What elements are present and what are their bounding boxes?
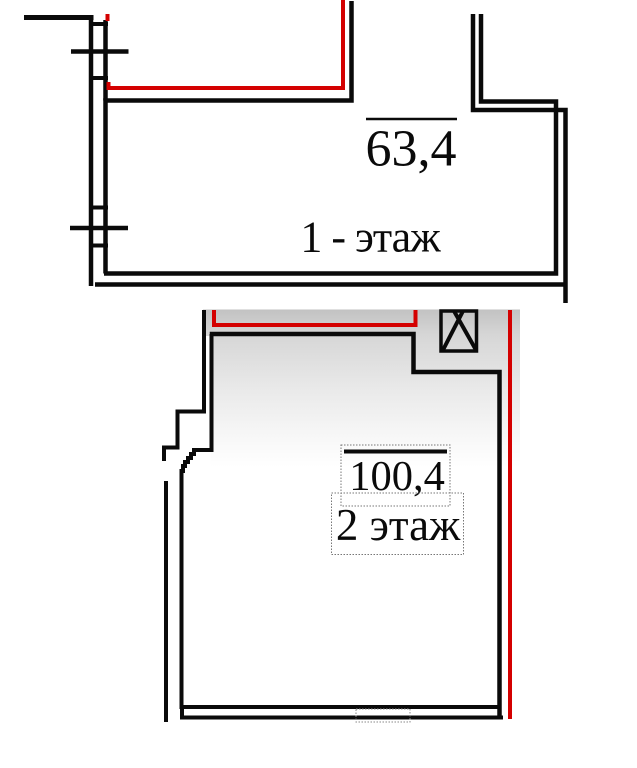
svg-text:100,4: 100,4 — [349, 453, 445, 500]
svg-text:2 этаж: 2 этаж — [336, 500, 461, 550]
svg-text:1 - этаж: 1 - этаж — [300, 213, 441, 262]
svg-text:63,4: 63,4 — [366, 121, 457, 178]
